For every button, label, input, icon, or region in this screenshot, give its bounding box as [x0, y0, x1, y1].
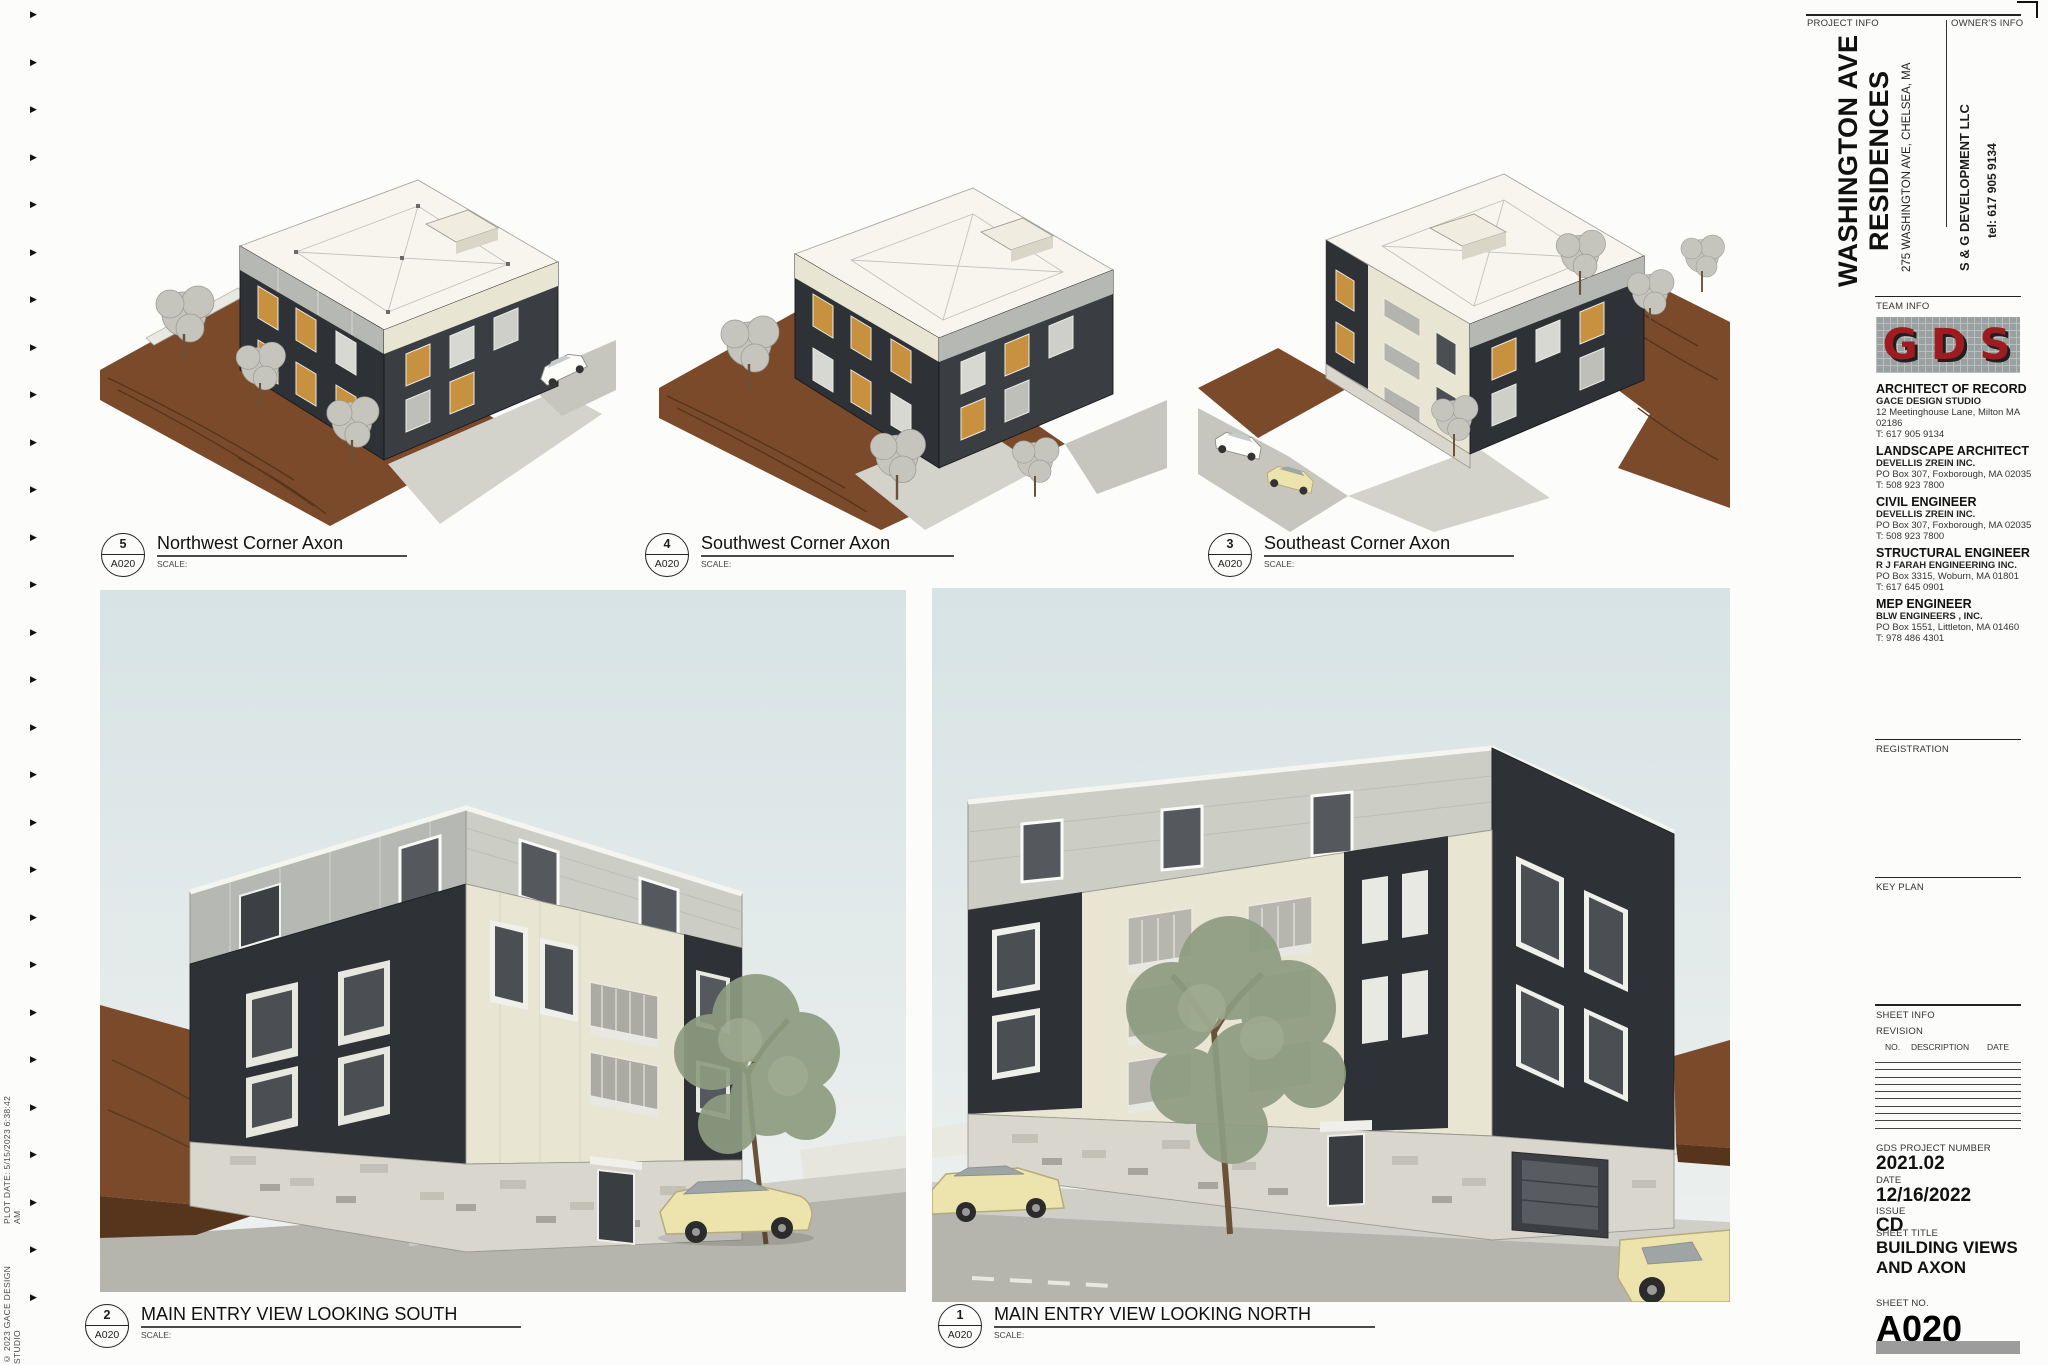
- view-title: Southeast Corner Axon: [1264, 533, 1514, 557]
- team-address: PO Box 307, Foxborough, MA 02035: [1876, 469, 2041, 480]
- team-firm: BLW ENGINEERS , INC.: [1876, 611, 2041, 622]
- view-scale: SCALE:: [994, 1330, 1375, 1340]
- sheet-corner-mark: [2017, 1, 2038, 18]
- revision-table-lines: [1875, 1062, 2021, 1135]
- view-label-4: 4 A020 Southwest Corner Axon SCALE:: [645, 533, 954, 577]
- dirt-hill: [1674, 1040, 1730, 1148]
- team-address: 12 Meetinghouse Lane, Milton MA 02186: [1876, 407, 2041, 429]
- plot-stamp: © 2023 GACE DESIGN STUDIO PLOT DATE: 5/1…: [2, 1096, 22, 1364]
- team-entry: LANDSCAPE ARCHITECT DEVELLIS ZREIN INC. …: [1876, 444, 2041, 491]
- sheet-title-value: BUILDING VIEWS AND AXON: [1876, 1238, 2031, 1278]
- revision-col-description: DESCRIPTION: [1911, 1042, 1969, 1052]
- view-callout: 2 A020: [85, 1304, 129, 1348]
- team-address: PO Box 1551, Littleton, MA 01460: [1876, 622, 2041, 633]
- project-info-header: PROJECT INFO: [1807, 18, 1879, 29]
- team-entry: MEP ENGINEER BLW ENGINEERS , INC. PO Box…: [1876, 597, 2041, 644]
- owners-info-header: OWNER'S INFO: [1951, 18, 2023, 29]
- team-info-header: TEAM INFO: [1876, 301, 1930, 312]
- axon-southeast-drawing: [1198, 108, 1730, 532]
- view-label-2: 2 A020 MAIN ENTRY VIEW LOOKING SOUTH SCA…: [85, 1304, 521, 1348]
- callout-sheet-ref: A020: [102, 555, 144, 573]
- view-scale: SCALE:: [701, 559, 954, 569]
- view-title: Northwest Corner Axon: [157, 533, 407, 557]
- view-callout: 4 A020: [645, 533, 689, 577]
- binding-edge-ticks: ▶▶▶▶▶▶▶▶▶▶▶▶▶▶▶▶▶▶▶▶▶▶▶▶▶▶▶▶: [30, 10, 50, 1365]
- callout-sheet-ref: A020: [939, 1326, 981, 1344]
- team-list: ARCHITECT OF RECORD GACE DESIGN STUDIO 1…: [1876, 378, 2041, 644]
- revision-col-no: NO.: [1885, 1042, 1900, 1052]
- view-scale: SCALE:: [141, 1330, 521, 1340]
- team-role: MEP ENGINEER: [1876, 597, 2041, 611]
- team-firm: GACE DESIGN STUDIO: [1876, 396, 2041, 407]
- owner-phone: tel: 617 905 9134: [1985, 112, 1999, 270]
- drawing-sheet: ▶▶▶▶▶▶▶▶▶▶▶▶▶▶▶▶▶▶▶▶▶▶▶▶▶▶▶▶ © 2023 GACE…: [0, 0, 2048, 1365]
- callout-number: 3: [1209, 534, 1251, 555]
- gds-logo: GDS: [1876, 317, 2020, 373]
- callout-sheet-ref: A020: [1209, 555, 1251, 573]
- team-phone: T: 508 923 7800: [1876, 480, 2041, 491]
- team-entry: ARCHITECT OF RECORD GACE DESIGN STUDIO 1…: [1876, 382, 2041, 440]
- project-number-value: 2021.02: [1876, 1153, 1945, 1175]
- callout-sheet-ref: A020: [646, 555, 688, 573]
- view-callout: 3 A020: [1208, 533, 1252, 577]
- team-firm: R J FARAH ENGINEERING INC.: [1876, 560, 2041, 571]
- project-address: 275 WASHINGTON AVE, CHELSEA, MA: [1901, 48, 1913, 286]
- team-role: CIVIL ENGINEER: [1876, 495, 2041, 509]
- callout-number: 5: [102, 534, 144, 555]
- car-icon: [1618, 1230, 1730, 1302]
- road: [1065, 400, 1167, 494]
- walkway: [1348, 448, 1550, 532]
- view-callout: 1 A020: [938, 1304, 982, 1348]
- building: [1326, 174, 1644, 468]
- project-title-line1: WASHINGTON AVE: [1833, 35, 1863, 288]
- perspective-north-drawing: [932, 588, 1730, 1302]
- copyright-text: © 2023 GACE DESIGN STUDIO: [2, 1244, 22, 1364]
- entry-door: [1328, 1134, 1364, 1206]
- view-label-3: 3 A020 Southeast Corner Axon SCALE:: [1208, 533, 1514, 577]
- revision-header: REVISION: [1876, 1026, 1923, 1037]
- project-title: WASHINGTON AVE RESIDENCES: [1833, 30, 1895, 292]
- date-value: 12/16/2022: [1876, 1185, 1971, 1207]
- key-plan-header: KEY PLAN: [1876, 882, 1924, 893]
- callout-number: 2: [86, 1305, 128, 1326]
- callout-number: 4: [646, 534, 688, 555]
- team-entry: STRUCTURAL ENGINEER R J FARAH ENGINEERIN…: [1876, 546, 2041, 593]
- view-scale: SCALE:: [1264, 559, 1514, 569]
- team-entry: CIVIL ENGINEER DEVELLIS ZREIN INC. PO Bo…: [1876, 495, 2041, 542]
- team-firm: DEVELLIS ZREIN INC.: [1876, 458, 2041, 469]
- team-phone: T: 508 923 7800: [1876, 531, 2041, 542]
- axon-southwest-drawing: [645, 138, 1167, 532]
- callout-number: 1: [939, 1305, 981, 1326]
- team-role: ARCHITECT OF RECORD: [1876, 382, 2041, 396]
- team-role: STRUCTURAL ENGINEER: [1876, 546, 2041, 560]
- team-phone: T: 617 905 9134: [1876, 429, 2041, 440]
- title-block-footer-bar: [1876, 1341, 2020, 1354]
- gds-logo-text: GDS: [1873, 324, 2024, 367]
- view-label-1: 1 A020 MAIN ENTRY VIEW LOOKING NORTH SCA…: [938, 1304, 1375, 1348]
- registration-header: REGISTRATION: [1876, 744, 1949, 755]
- view-title: MAIN ENTRY VIEW LOOKING SOUTH: [141, 1304, 521, 1328]
- building: [190, 808, 742, 1252]
- team-phone: T: 978 486 4301: [1876, 633, 2041, 644]
- sheet-info-header: SHEET INFO: [1876, 1010, 1935, 1021]
- view-title: MAIN ENTRY VIEW LOOKING NORTH: [994, 1304, 1375, 1328]
- view-label-5: 5 A020 Northwest Corner Axon SCALE:: [101, 533, 407, 577]
- view-title: Southwest Corner Axon: [701, 533, 954, 557]
- view-scale: SCALE:: [157, 559, 407, 569]
- revision-col-date: DATE: [1987, 1042, 2009, 1052]
- project-title-line2: RESIDENCES: [1864, 71, 1894, 252]
- axon-northwest-drawing: [88, 128, 616, 530]
- view-callout: 5 A020: [101, 533, 145, 577]
- owner-name: S & G DEVELOPMENT LLC: [1957, 88, 1972, 288]
- team-phone: T: 617 645 0901: [1876, 582, 2041, 593]
- team-firm: DEVELLIS ZREIN INC.: [1876, 509, 2041, 520]
- plot-date-text: PLOT DATE: 5/15/2023 6:38:42 AM: [2, 1096, 22, 1224]
- title-block: PROJECT INFO OWNER'S INFO WASHINGTON AVE…: [1805, 0, 2048, 1365]
- perspective-south-drawing: [100, 590, 906, 1292]
- team-role: LANDSCAPE ARCHITECT: [1876, 444, 2041, 458]
- team-address: PO Box 3315, Woburn, MA 01801: [1876, 571, 2041, 582]
- callout-sheet-ref: A020: [86, 1326, 128, 1344]
- team-address: PO Box 307, Foxborough, MA 02035: [1876, 520, 2041, 531]
- entry-door: [598, 1170, 634, 1244]
